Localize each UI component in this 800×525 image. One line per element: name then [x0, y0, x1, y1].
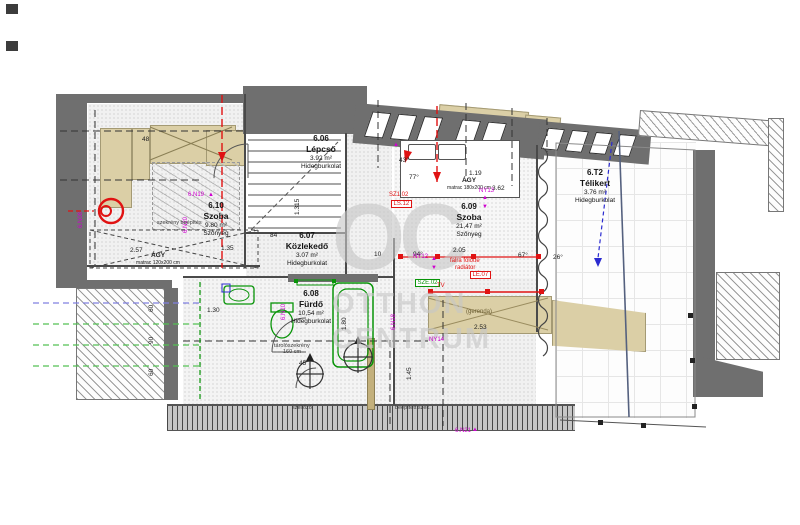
room-area: 3.76 m²: [560, 189, 630, 197]
room-area: 9.80 m²: [186, 222, 246, 230]
room-finish: Hidegburkolat: [560, 197, 630, 205]
room-label-609: 6.09 Szoba 21,47 m² Szőnyeg: [436, 202, 502, 239]
room-name: Lépcső: [288, 144, 354, 155]
mattress-note: matrac 180x200 cm: [432, 185, 506, 191]
bed-label: ÁGY: [432, 177, 506, 185]
room-finish: Szőnyeg: [186, 230, 246, 238]
room-finish: Hidegburkolat: [278, 318, 344, 326]
room-finish: Szőnyeg: [436, 231, 502, 239]
room-label-606: 6.06 Lépcső 3.92 m² Hidegburkolat: [288, 134, 354, 171]
room-label-T2: 6.T2 Télikert 3.76 m² Hidegburkolat: [560, 168, 630, 205]
room-finish: Hidegburkolat: [288, 163, 354, 171]
room-area: 3.92 m²: [288, 155, 354, 163]
bed-large-label: ÁGY matrac 180x200 cm: [432, 177, 506, 191]
beam-label: (gerenda): [466, 309, 492, 315]
room-id: 6.09: [436, 202, 502, 212]
room-area: 3.07 m²: [274, 252, 340, 260]
room-area: 21,47 m²: [436, 223, 502, 231]
bed-label: ÁGY: [116, 252, 200, 260]
floor-plan-canvas: OC OTTHON CENTRUM 6.06 Lépcső 3.92 m² Hi…: [0, 0, 800, 525]
room-label-610: 6.10 Szoba 9.80 m² Szőnyeg: [186, 201, 246, 238]
room-label-607: 6.07 Közlekedő 3.07 m² Hidegburkolat: [274, 231, 340, 268]
room-name: Közlekedő: [274, 241, 340, 252]
mattress-note: matrac 120x200 cm: [116, 260, 200, 266]
room-id: 6.06: [288, 134, 354, 144]
room-finish: Hidegburkolat: [274, 260, 340, 268]
room-id: 6.10: [186, 201, 246, 211]
room-label-608: 6.08 Fürdő 10,54 m² Hidegburkolat: [278, 289, 344, 326]
room-id: 6.07: [274, 231, 340, 241]
bed-small-label: ÁGY matrac 120x200 cm: [116, 252, 200, 266]
room-name: Fürdő: [278, 299, 344, 310]
room-area: 10,54 m²: [278, 310, 344, 318]
room-name: Szoba: [436, 212, 502, 223]
room-name: Télikert: [560, 178, 630, 189]
room-name: Szoba: [186, 211, 246, 222]
room-id: 6.08: [278, 289, 344, 299]
room-id: 6.T2: [560, 168, 630, 178]
